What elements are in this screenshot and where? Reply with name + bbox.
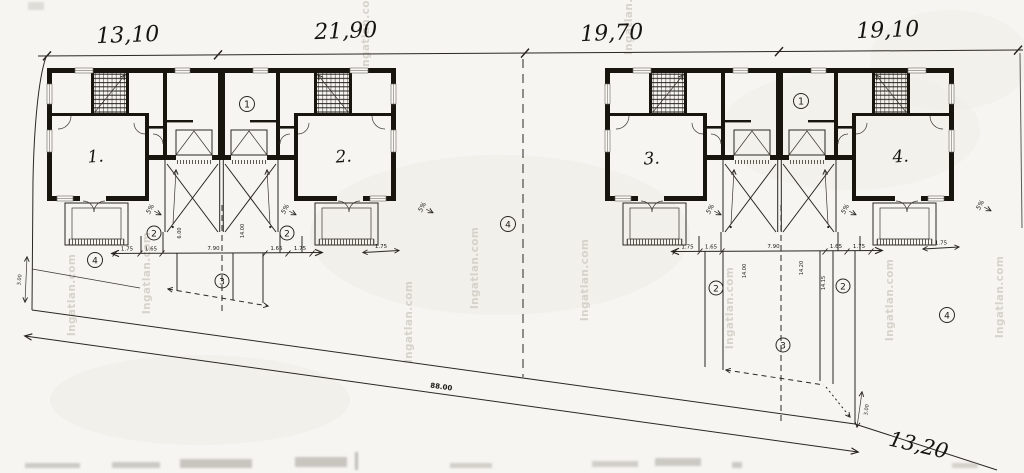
- svg-text:4: 4: [92, 256, 98, 266]
- strip-width: 1.65: [830, 244, 843, 250]
- svg-text:3: 3: [219, 277, 225, 287]
- watermark: Ingatlan.com: [724, 267, 736, 349]
- svg-text:2: 2: [840, 282, 846, 292]
- driveway-length: 6.00: [177, 227, 183, 238]
- svg-text:4: 4: [944, 311, 950, 321]
- watermark: Ingatlan.com: [469, 227, 481, 309]
- strip-width: 1.65: [270, 246, 283, 252]
- watermark: Ingatlan.com: [884, 259, 896, 341]
- watermark: Ingatlan.com: [579, 239, 591, 321]
- site-plan-drawing: Ingatlan.com Ingatlan.com Ingatlan.com I…: [0, 0, 1024, 473]
- watermark: Ingatlan.com: [994, 256, 1006, 338]
- unit-4-label: 4.: [891, 146, 910, 167]
- svg-text:4: 4: [505, 220, 511, 230]
- dim-top-3: 19,70: [580, 20, 644, 47]
- strip-width: 1.75: [294, 246, 307, 252]
- svg-text:1: 1: [244, 100, 250, 111]
- unit-3-label: 3.: [643, 148, 661, 169]
- watermark: Ingatlan.com: [66, 254, 78, 336]
- dim-top-2: 21,90: [313, 18, 378, 45]
- driveway-length: 14.15: [821, 276, 827, 290]
- svg-text:2: 2: [713, 284, 719, 294]
- setback-value: 3.00: [16, 274, 23, 286]
- strip-width: 1.75: [853, 244, 866, 250]
- strip-width: 7.90: [767, 244, 780, 250]
- dim-top-1: 13,10: [96, 22, 160, 49]
- strip-width: 1.75: [121, 247, 134, 253]
- watermark: Ingatlan.com: [141, 232, 153, 314]
- side-strip-value: 1.75: [375, 244, 388, 250]
- driveway-length: 14.00: [240, 224, 246, 238]
- watermark: Ingatlan.com: [403, 281, 415, 363]
- strip-width: 7.90: [207, 246, 220, 252]
- unit-1-label: 1.: [87, 146, 105, 167]
- driveway-length: 14.00: [742, 264, 748, 278]
- strip-width: 1.65: [705, 245, 718, 251]
- svg-text:2: 2: [151, 229, 157, 239]
- driveway-length: 14.20: [799, 261, 805, 275]
- unit-2-label: 2.: [334, 146, 353, 167]
- strip-width: 1.65: [145, 247, 158, 253]
- strip-width: 1.75: [681, 245, 694, 251]
- svg-text:1: 1: [798, 97, 804, 108]
- scanned-site-plan: Ingatlan.com Ingatlan.com Ingatlan.com I…: [0, 0, 1024, 473]
- side-strip-value: 1.75: [935, 241, 948, 247]
- svg-text:2: 2: [284, 229, 290, 239]
- dim-top-4: 19,10: [856, 17, 920, 44]
- svg-text:3: 3: [780, 341, 786, 351]
